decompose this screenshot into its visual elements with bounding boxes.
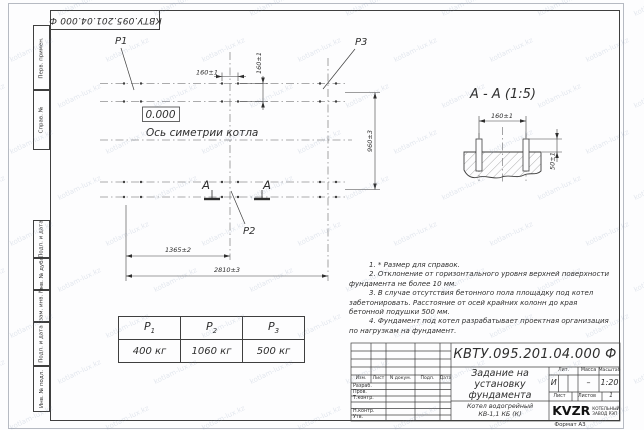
loads-col-p2: P2: [181, 317, 243, 340]
top-designation-text: КВТУ.095.201.04.000 Ф: [49, 15, 162, 25]
tb-lit-label: Лит.: [549, 368, 578, 375]
loads-value-p2: 1060 кг: [181, 340, 243, 363]
tb-lit-value: И: [549, 376, 559, 391]
loads-table: P1 P2 P3 400 кг 1060 кг 500 кг: [118, 316, 305, 363]
tb-product-line-2: КВ-1,1 КБ (К): [452, 411, 548, 419]
loads-col-p3: P3: [243, 317, 305, 340]
tb-company-logo: KVZR КОТЕЛЬНЫЙ ЗАВОД РЭП: [551, 403, 619, 419]
tb-header-podp: Подп.: [415, 375, 440, 383]
drawing-sheet: КВТУ.095.201.04.000 Ф Перв. примен. Спра…: [0, 0, 644, 430]
loads-value-p1: 400 кг: [119, 340, 181, 363]
tb-header-list: Лист: [371, 375, 386, 383]
tb-scale-label: Масштаб: [599, 368, 620, 375]
tb-role-tkontr: Т.контр.: [353, 396, 386, 402]
tb-title-line-3: фундамента: [452, 390, 548, 401]
loads-table-header-row: P1 P2 P3: [119, 317, 305, 340]
tb-header-data: Дата: [440, 375, 451, 383]
tb-title-line-1: Задание на: [452, 368, 548, 379]
tb-sheet-label: Лист: [549, 393, 570, 401]
tb-scale-value: 1:20: [599, 376, 620, 391]
kvzr-logo-text: KVZR: [552, 404, 590, 417]
tb-sheets-value: 1: [602, 393, 620, 401]
top-designation-box: КВТУ.095.201.04.000 Ф: [50, 10, 160, 30]
tb-product-line-1: Котел водогрейный: [452, 403, 548, 411]
sidebar-cell-inv-dubl: Инв. № дубл.: [33, 258, 50, 290]
note-4: 4. Фундамент под котел разрабатывает про…: [349, 317, 613, 336]
format-note: Формат А3: [535, 422, 605, 430]
sidebar-cell-podp-data-2: Подп. и дата: [33, 322, 50, 366]
tb-role-utv: Утв.: [353, 415, 386, 421]
tb-designation: КВТУ.095.201.04.000 Ф: [452, 345, 618, 365]
loads-value-p3: 500 кг: [243, 340, 305, 363]
sidebar-cell-inv-podl: Инв. № подл.: [33, 366, 50, 412]
tb-sheets-label: Листов: [572, 393, 602, 401]
company-subtitle: КОТЕЛЬНЫЙ ЗАВОД РЭП: [592, 406, 619, 416]
technical-notes: 1. * Размер для справок. 2. Отклонение о…: [349, 261, 613, 336]
note-3: 3. В случае отсутствия бетонного пола пл…: [349, 289, 613, 317]
sidebar-cell-podp-data-1: Подп. и дата: [33, 220, 50, 258]
sidebar-cell-perv-primen: Перв. примен.: [33, 25, 50, 90]
loads-col-p1: P1: [119, 317, 181, 340]
sidebar-cell-vzam-inv: Взам. инв. №: [33, 290, 50, 322]
tb-header-dokum: N докум.: [386, 375, 415, 383]
loads-table-value-row: 400 кг 1060 кг 500 кг: [119, 340, 305, 363]
note-2: 2. Отклонение от горизонтального уровня …: [349, 270, 613, 289]
tb-mass-value: –: [578, 376, 599, 391]
tb-title-line-2: установку: [452, 379, 548, 390]
tb-mass-label: Масса: [578, 368, 599, 375]
sidebar-cell-sprav-n: Справ. №: [33, 90, 50, 150]
note-1: 1. * Размер для справок.: [349, 261, 613, 270]
tb-header-izm: Изм.: [351, 375, 371, 383]
